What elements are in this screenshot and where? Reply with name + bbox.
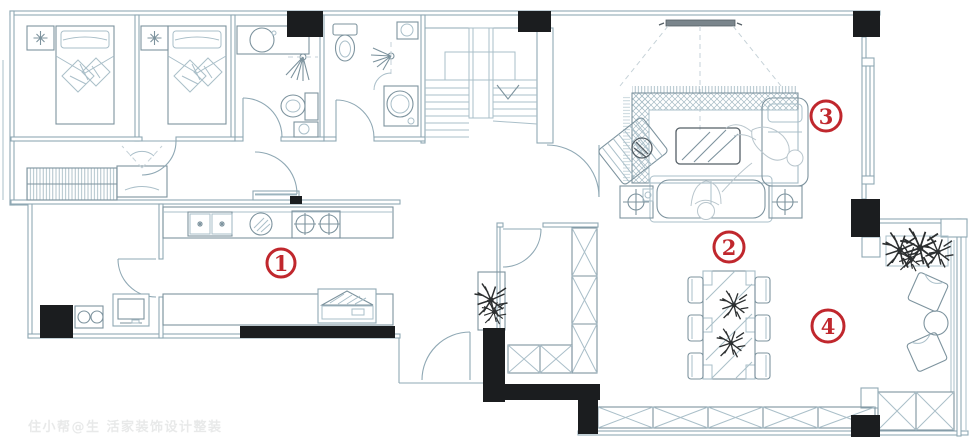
toilet — [281, 93, 318, 120]
counter-appliance — [318, 289, 376, 323]
dressing-area — [27, 146, 167, 200]
person-sitting — [691, 163, 752, 220]
structural-columns — [40, 11, 880, 437]
window-bench — [598, 407, 875, 428]
tv-appliance — [113, 294, 149, 326]
staircase — [425, 28, 537, 137]
person-lying — [726, 125, 803, 166]
twin-bed-2 — [168, 26, 226, 124]
twin-bed-1 — [56, 26, 114, 124]
chaise — [762, 98, 808, 186]
svg-text:3: 3 — [819, 104, 834, 129]
shower-head-icon — [286, 54, 318, 81]
kitchen — [75, 207, 393, 328]
entry-plant — [475, 272, 508, 330]
living-room — [597, 20, 808, 222]
entry-door — [422, 332, 470, 380]
wardrobe — [27, 168, 117, 200]
round-basin — [250, 28, 274, 52]
watermark: 住小帮@生 活家装饰设计整装 — [28, 416, 223, 435]
lamp-icon — [148, 31, 162, 45]
armchair-2 — [906, 332, 947, 372]
marker-1: 1 — [267, 249, 295, 277]
door-bedroom-wing — [142, 141, 176, 175]
rug — [623, 86, 798, 183]
gas-stove — [292, 211, 340, 238]
marker-4: 4 — [812, 310, 844, 342]
door-pantry — [118, 259, 156, 297]
round-table — [924, 311, 948, 335]
projection-beam — [733, 26, 781, 86]
coffee-table — [676, 128, 740, 164]
armchair-1 — [907, 272, 948, 312]
bathroom-1 — [237, 26, 318, 137]
marker-2: 2 — [714, 232, 744, 262]
svg-text:1: 1 — [274, 251, 289, 276]
projection-beam — [620, 26, 668, 86]
dining-area — [688, 271, 770, 379]
vanity — [384, 86, 418, 126]
entry — [422, 228, 597, 380]
dining-chairs — [688, 277, 770, 379]
closet-wardrobe — [572, 228, 597, 373]
leisure-balcony — [861, 228, 954, 430]
projection-screen — [659, 20, 742, 26]
marker-3: 3 — [811, 101, 841, 131]
round-plate — [250, 213, 272, 235]
bedroom-2 — [141, 26, 226, 124]
balcony-cabinet — [878, 392, 954, 430]
shower-head-icon — [371, 42, 394, 90]
toilet — [333, 24, 357, 61]
svg-text:2: 2 — [722, 235, 737, 260]
washer — [75, 306, 103, 328]
lamp-icon — [34, 31, 48, 45]
door-corridor-living — [547, 145, 599, 197]
closet-door — [503, 229, 541, 267]
dresser — [117, 146, 167, 197]
bedroom-1 — [27, 26, 114, 124]
double-sink — [188, 212, 232, 236]
floor-plan: 1 2 3 4 住小帮@生 活家装饰设计整装 — [0, 0, 975, 447]
door-bathroom-2 — [336, 100, 374, 138]
side-table-left — [620, 186, 653, 218]
door-bathroom-1 — [243, 98, 282, 137]
stairs-down-arrow — [497, 85, 519, 99]
door-suite — [255, 152, 297, 194]
floor-plan-drawing: 1 2 3 4 — [0, 0, 975, 447]
dining-table — [703, 271, 755, 379]
shoe-cabinet — [508, 345, 572, 373]
svg-text:4: 4 — [821, 314, 836, 339]
bathroom-2 — [333, 22, 418, 138]
side-table-right — [769, 186, 802, 218]
